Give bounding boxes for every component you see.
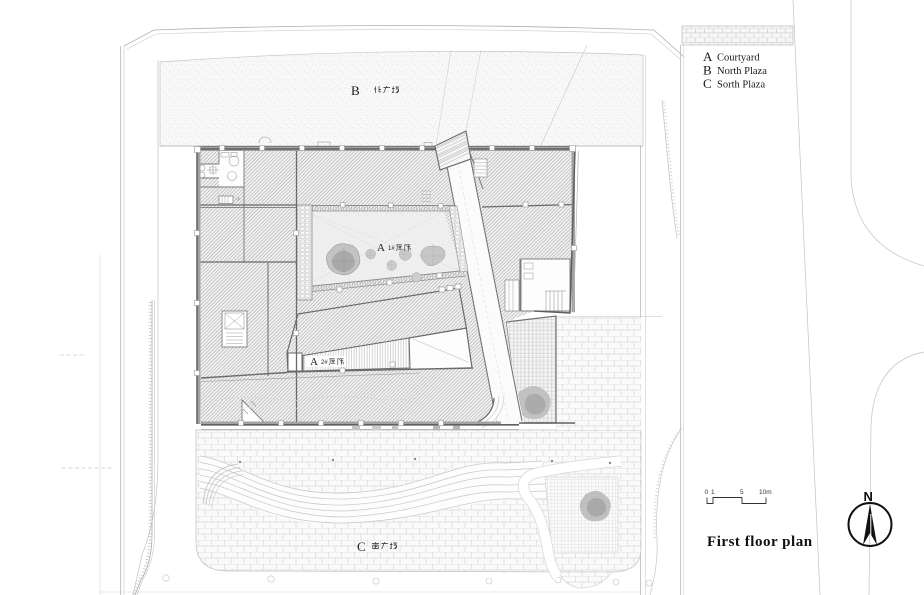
svg-text:C: C	[357, 539, 366, 554]
svg-text:2#: 2#	[321, 360, 328, 366]
svg-text:C: C	[703, 76, 712, 91]
svg-text:Courtyard: Courtyard	[717, 53, 760, 64]
svg-text:North Plaza: North Plaza	[717, 66, 767, 77]
svg-text:0: 0	[705, 489, 709, 496]
svg-text:10m: 10m	[759, 489, 772, 496]
svg-text:5: 5	[740, 489, 744, 496]
svg-text:B: B	[351, 83, 360, 98]
svg-text:1#: 1#	[388, 246, 395, 252]
svg-text:1: 1	[711, 489, 715, 496]
svg-text:A: A	[310, 356, 318, 368]
svg-text:First floor plan: First floor plan	[707, 534, 813, 550]
svg-text:Sorth Plaza: Sorth Plaza	[717, 80, 765, 91]
svg-text:A: A	[377, 242, 385, 254]
svg-text:N: N	[864, 489, 873, 504]
